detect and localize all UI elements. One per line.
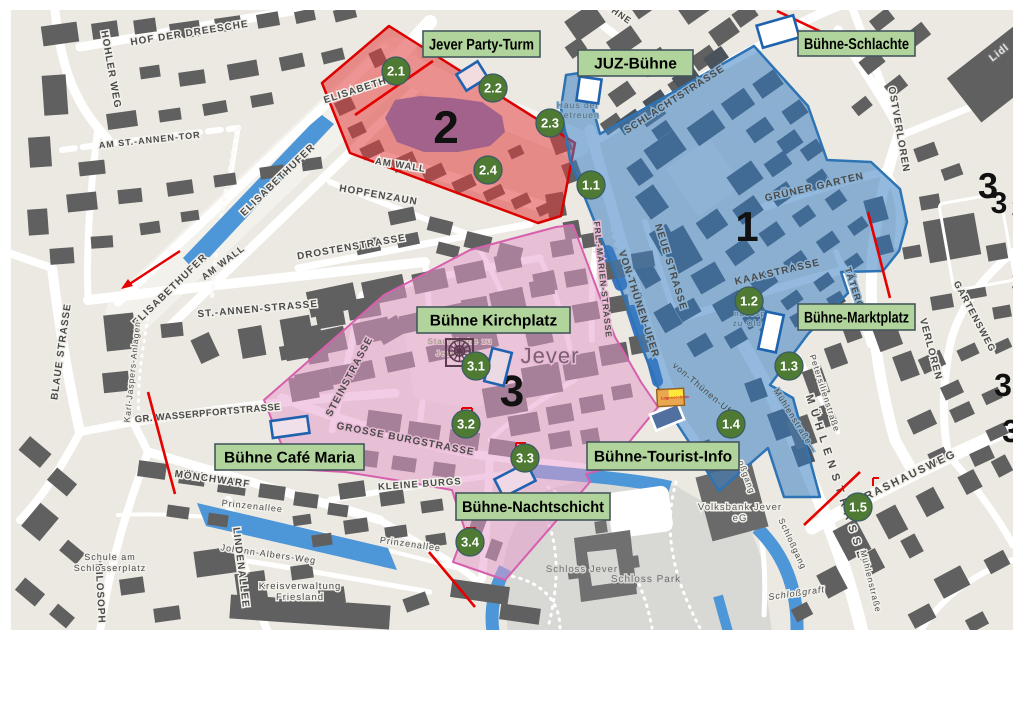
svg-text:1: 1 [735,203,758,250]
svg-text:Schlosserplatz: Schlosserplatz [74,563,147,573]
svg-text:2.4: 2.4 [479,163,498,178]
svg-text:eG: eG [733,513,748,524]
svg-text:1.4: 1.4 [722,417,741,432]
svg-text:Bühne Café Maria: Bühne Café Maria [224,450,355,467]
svg-text:Schloss Jever: Schloss Jever [546,564,618,575]
svg-text:3: 3 [991,187,1008,220]
svg-text:JUZ-Bühne: JUZ-Bühne [594,56,677,73]
svg-text:1.2: 1.2 [740,294,758,309]
svg-text:Schule am: Schule am [84,552,136,562]
svg-text:2.3: 2.3 [541,116,559,131]
svg-text:2: 2 [433,101,459,153]
svg-text:Bühne-Tourist-Info: Bühne-Tourist-Info [594,449,732,466]
svg-text:Bühne-Marktplatz: Bühne-Marktplatz [804,310,909,327]
svg-text:1.5: 1.5 [849,500,867,515]
svg-text:3.2: 3.2 [457,417,475,432]
svg-text:Bühne Kirchplatz: Bühne Kirchplatz [430,313,558,330]
svg-text:Volksbank Jever: Volksbank Jever [698,502,782,513]
svg-text:Schloss Park: Schloss Park [611,574,681,585]
svg-text:Bühne-Nachtschicht: Bühne-Nachtschicht [462,499,604,516]
svg-text:2.2: 2.2 [484,81,502,96]
svg-text:3: 3 [994,367,1012,403]
svg-text:3.1: 3.1 [467,359,485,374]
svg-text:3.3: 3.3 [516,451,534,466]
svg-text:Jever Party-Turm: Jever Party-Turm [429,37,534,54]
svg-text:1.1: 1.1 [582,178,600,193]
svg-text:Kreisverwaltung: Kreisverwaltung [259,581,342,592]
svg-text:2.1: 2.1 [387,64,405,79]
svg-text:Jever: Jever [521,343,580,368]
svg-text:1.3: 1.3 [780,359,798,374]
svg-text:Friesland: Friesland [276,592,324,603]
svg-text:3.4: 3.4 [461,535,480,550]
svg-text:Bühne-Schlachte: Bühne-Schlachte [804,36,909,53]
